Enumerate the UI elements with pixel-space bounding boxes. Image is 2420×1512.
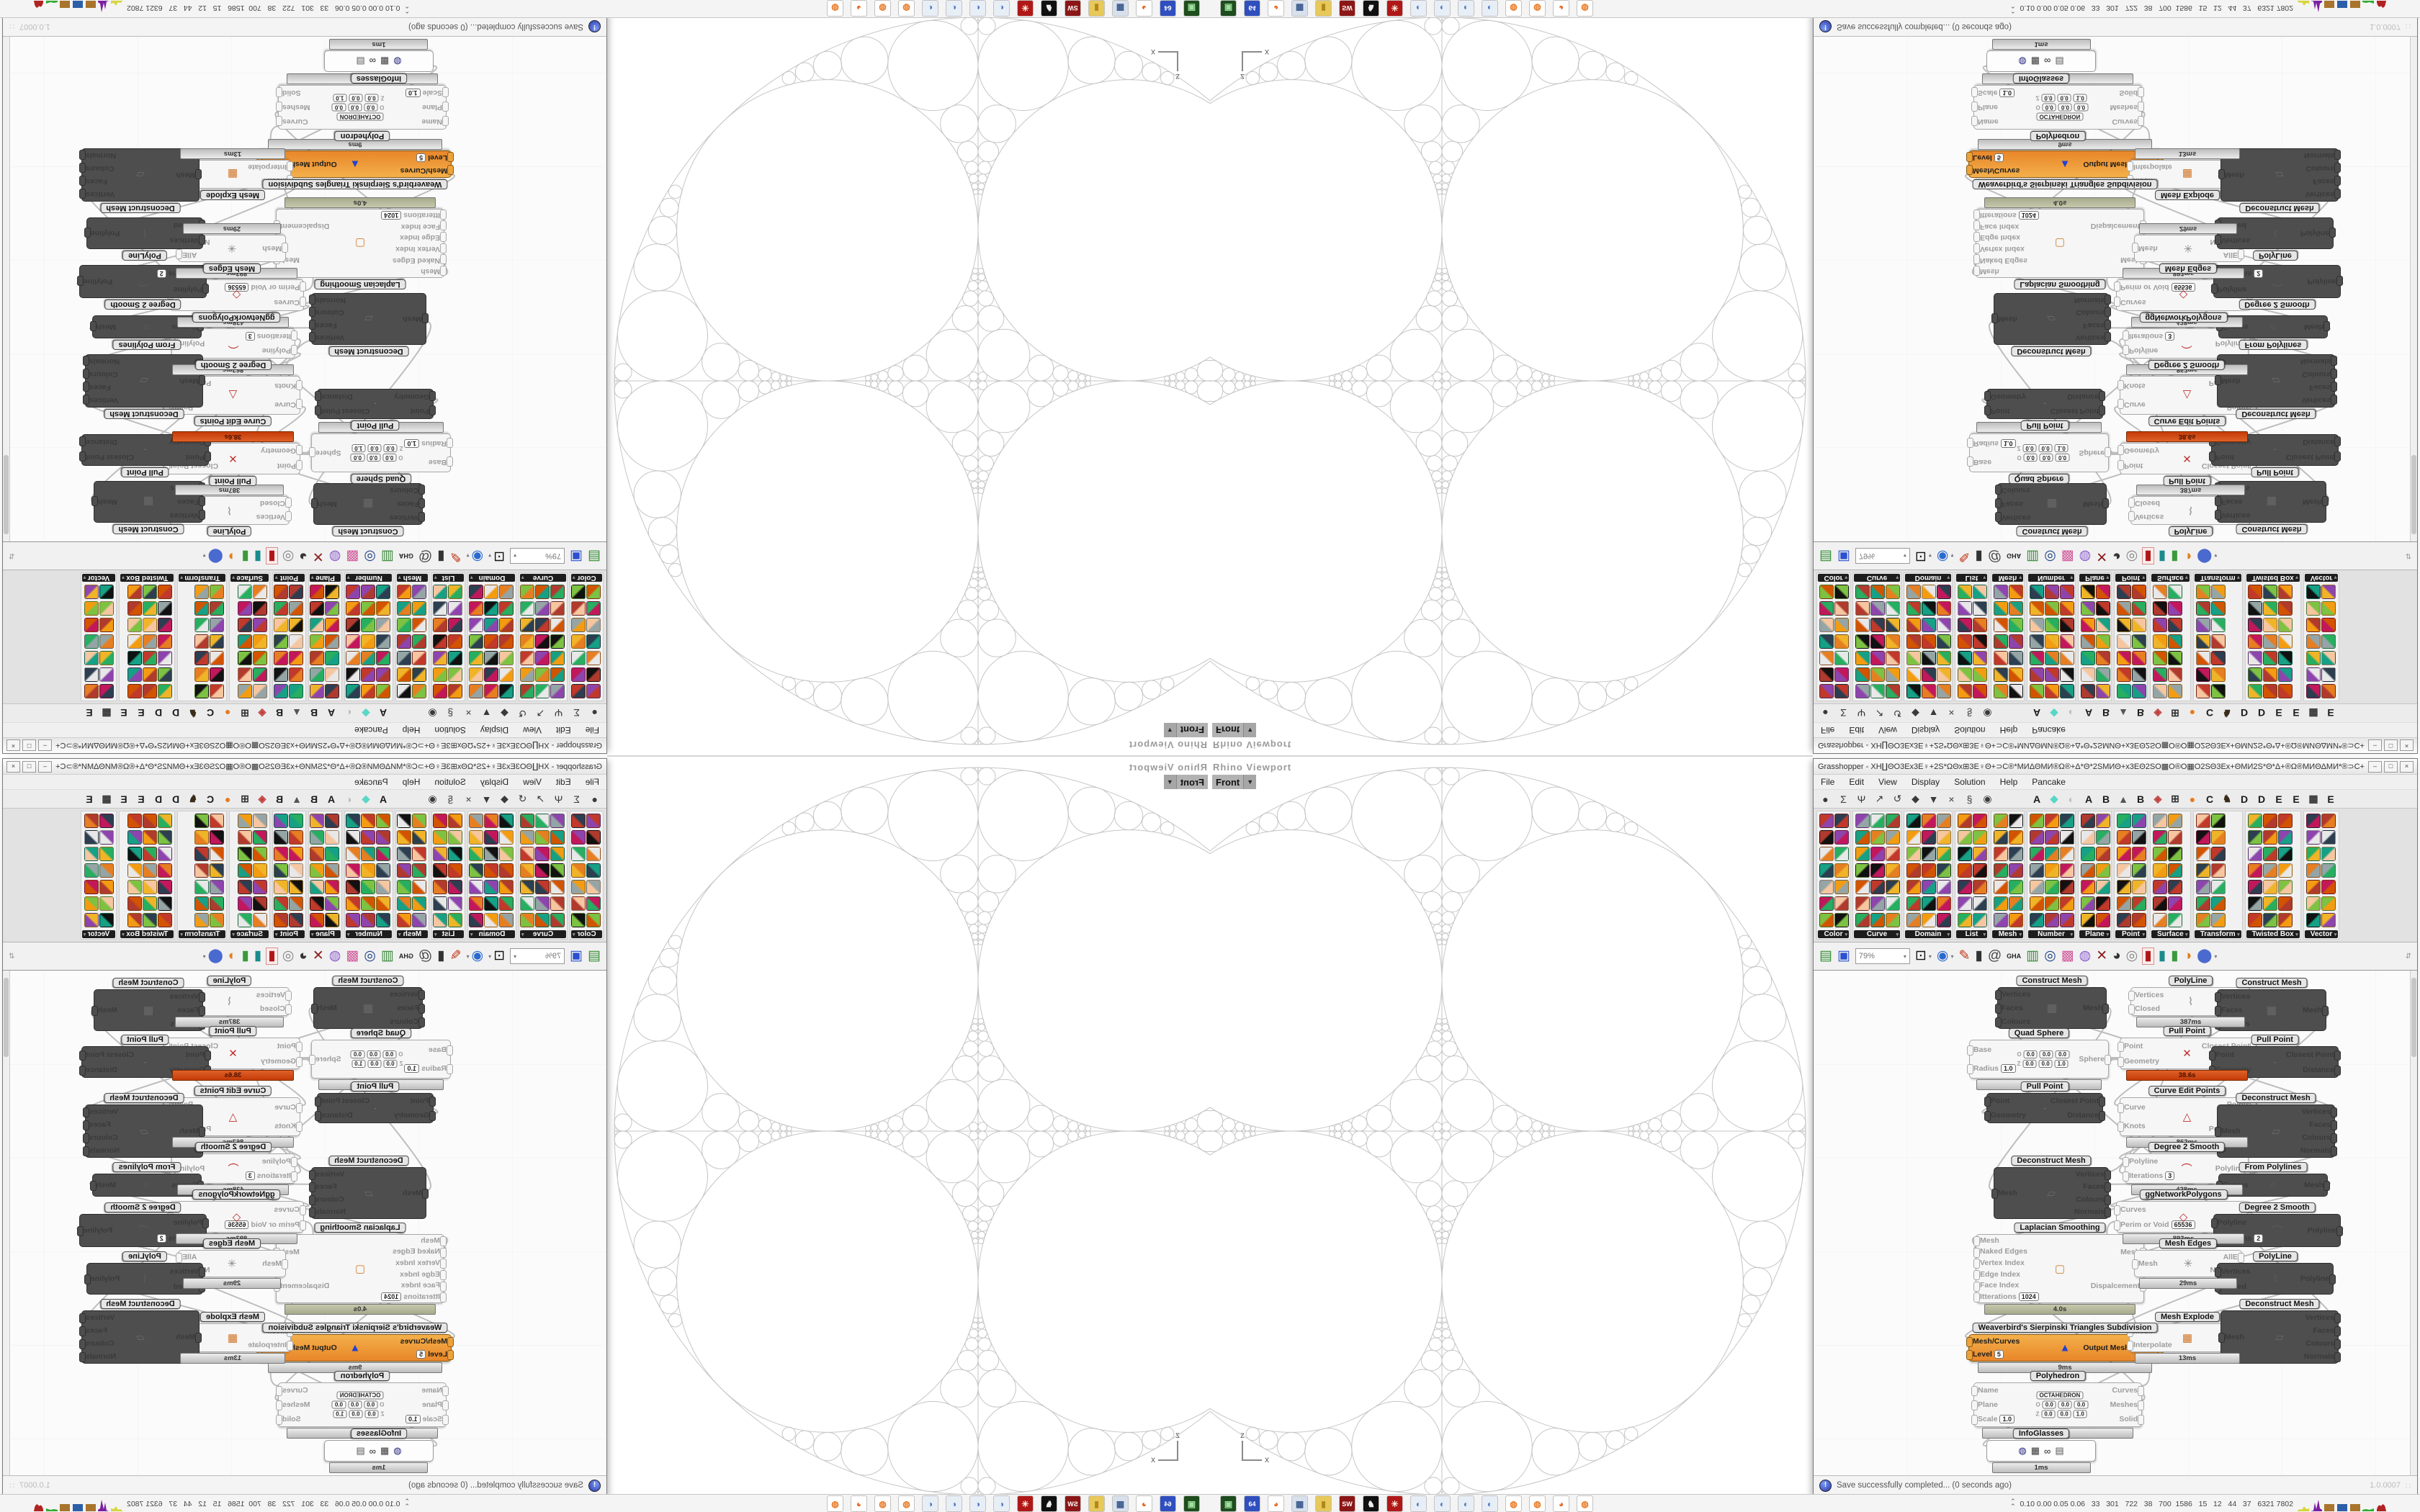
panel-label-transform[interactable]: Transform▾	[2195, 574, 2241, 582]
component-icon[interactable]	[127, 601, 142, 616]
panel-label-color[interactable]: Color▾	[571, 574, 602, 582]
component-icon[interactable]	[448, 863, 462, 878]
app-icon-4[interactable]: ▮	[1088, 1495, 1105, 1512]
component-icon[interactable]	[325, 863, 339, 878]
value-box[interactable]: 0.0	[2074, 104, 2088, 112]
component-icon[interactable]	[448, 618, 462, 632]
component-icon[interactable]	[2306, 618, 2321, 632]
component-icon[interactable]	[2045, 913, 2059, 927]
port-bump[interactable]	[2323, 321, 2330, 331]
input-port[interactable]: Geometry	[2124, 1057, 2159, 1066]
port-bump[interactable]	[2334, 1313, 2341, 1323]
component-icon[interactable]	[1886, 863, 1900, 878]
finder-magnifier-icon[interactable]: ◎	[364, 548, 376, 564]
component-icon[interactable]	[397, 684, 411, 698]
component-icon[interactable]	[2278, 896, 2293, 911]
tangle-x-icon[interactable]: ✕	[313, 948, 324, 964]
component-icon[interactable]	[346, 913, 360, 927]
preview-blue-gem-icon[interactable]: ⬤	[2197, 548, 2212, 564]
component-icon[interactable]	[469, 847, 483, 861]
component-icon[interactable]	[1834, 618, 1849, 632]
output-port[interactable]: Mesh	[98, 498, 117, 506]
plugin-tab-1[interactable]: ◆	[2045, 707, 2063, 719]
component-icon[interactable]	[433, 847, 447, 861]
component-icon[interactable]	[1834, 847, 1849, 861]
value-box[interactable]: OCTAHEDRON	[337, 113, 384, 121]
component-icon[interactable]	[325, 847, 339, 861]
port-bump[interactable]	[2211, 1218, 2218, 1228]
app-icon-13[interactable]: ◍	[1529, 1495, 1546, 1512]
component-icon[interactable]	[571, 880, 586, 894]
cluster-box-icon[interactable]: ▩	[2061, 548, 2074, 564]
component-icon[interactable]	[2117, 814, 2131, 828]
component-icon[interactable]	[2248, 585, 2262, 599]
app-icon-8[interactable]: ◐	[1410, 1495, 1427, 1512]
value-box[interactable]: 1.0	[2001, 1064, 2016, 1073]
component-icon[interactable]	[448, 830, 462, 845]
port-bump[interactable]	[2322, 496, 2329, 506]
component-icon[interactable]	[2263, 667, 2277, 682]
port-bump[interactable]	[2331, 1133, 2337, 1143]
component-icon[interactable]	[289, 667, 303, 682]
component-icon[interactable]	[289, 896, 303, 911]
plugin-tab-1[interactable]: ◆	[2045, 793, 2063, 805]
panel-label-point[interactable]: Point▾	[274, 574, 305, 582]
input-port[interactable]: Face Index	[1980, 222, 2019, 231]
component-icon[interactable]	[586, 896, 601, 911]
component-icon[interactable]	[143, 601, 157, 616]
component-icon[interactable]	[2321, 634, 2336, 649]
port-bump[interactable]	[296, 461, 302, 471]
input-port[interactable]: Point	[2215, 454, 2234, 462]
output-port[interactable]: AllE	[2223, 1253, 2238, 1261]
component-icon[interactable]	[2306, 896, 2321, 911]
component-icon[interactable]	[2278, 863, 2293, 878]
value-box[interactable]: 0.0	[367, 1050, 380, 1058]
component-icon[interactable]	[2132, 880, 2146, 894]
component-icon[interactable]	[448, 896, 462, 911]
panel-label-color[interactable]: Color▾	[571, 930, 602, 938]
port-bump[interactable]	[440, 1292, 447, 1302]
category-tab-icon-1[interactable]: Σ	[1834, 708, 1852, 719]
panel-label-color[interactable]: Color▾	[1818, 930, 1849, 938]
output-port[interactable]: Curves	[2112, 117, 2138, 126]
port-bump[interactable]	[315, 405, 321, 415]
minimize-button[interactable]: –	[38, 740, 52, 752]
port-bump[interactable]	[2336, 276, 2343, 286]
gh-node-ph[interactable]: PolyhedronNamePlaneScale1.0CurvesMeshesS…	[1973, 1382, 2142, 1427]
value-box[interactable]: 0.0	[2056, 454, 2069, 462]
port-bump[interactable]	[1973, 232, 1980, 242]
component-icon[interactable]	[2153, 814, 2167, 828]
minimize-button[interactable]: –	[2368, 740, 2382, 752]
tangle-x-icon[interactable]: ✕	[313, 548, 324, 564]
port-bump[interactable]	[447, 1350, 454, 1360]
plugin-tab-17[interactable]: E	[2322, 793, 2339, 805]
value-box[interactable]: 0.0	[367, 1060, 381, 1068]
component-icon[interactable]	[397, 651, 411, 665]
port-bump[interactable]	[422, 313, 429, 323]
component-icon[interactable]	[2263, 847, 2277, 861]
port-bump[interactable]	[199, 510, 205, 520]
plugin-tab-0[interactable]: A	[2028, 708, 2045, 719]
output-port[interactable]: Dispalcement	[280, 222, 329, 231]
component-icon[interactable]	[412, 601, 426, 616]
app-icon-14[interactable]: ◕	[1553, 1495, 1569, 1512]
component-icon[interactable]	[325, 684, 339, 698]
value-box[interactable]: 5	[416, 153, 426, 162]
component-icon[interactable]	[210, 651, 224, 665]
component-icon[interactable]	[2060, 880, 2074, 894]
port-bump[interactable]	[1995, 1017, 2002, 1027]
component-icon[interactable]	[253, 585, 267, 599]
component-icon[interactable]	[310, 913, 324, 927]
menu-item-help[interactable]: Help	[395, 725, 428, 735]
component-icon[interactable]	[2168, 880, 2182, 894]
output-port[interactable]: Polyline	[2308, 277, 2336, 286]
component-icon[interactable]	[1870, 651, 1885, 665]
component-icon[interactable]	[2306, 684, 2321, 698]
port-bump[interactable]	[2331, 356, 2337, 366]
preview-green-cylinder-icon[interactable]: ▮	[2171, 948, 2178, 964]
port-bump[interactable]	[1995, 990, 2002, 1000]
port-bump[interactable]	[311, 1004, 318, 1014]
component-icon[interactable]	[1834, 880, 1849, 894]
menu-item-solution[interactable]: Solution	[427, 725, 472, 735]
input-port[interactable]: Curves	[274, 299, 300, 307]
port-bump[interactable]	[300, 282, 306, 292]
port-bump[interactable]	[442, 87, 449, 97]
component-icon[interactable]	[2278, 684, 2293, 698]
component-icon[interactable]	[346, 863, 360, 878]
component-icon[interactable]	[158, 601, 172, 616]
plugin-tab-0[interactable]: A	[375, 708, 392, 719]
component-icon[interactable]	[2132, 585, 2146, 599]
component-icon[interactable]	[2132, 896, 2146, 911]
output-port[interactable]: Faces	[89, 383, 111, 392]
scrollbar-thumb[interactable]	[4, 978, 9, 1057]
port-bump[interactable]	[2127, 1341, 2133, 1351]
menu-item-help[interactable]: Help	[1993, 777, 2025, 787]
component-icon[interactable]	[1819, 830, 1834, 845]
component-icon[interactable]	[274, 585, 288, 599]
input-port[interactable]: Radius1.0	[404, 1064, 447, 1073]
component-icon[interactable]	[2278, 634, 2293, 649]
value-box[interactable]: 3	[2165, 332, 2174, 341]
output-port[interactable]: Curves	[282, 1386, 308, 1395]
input-port[interactable]: Vertex Index	[1980, 1259, 2025, 1267]
input-port[interactable]: Knots	[274, 1122, 296, 1130]
component-icon[interactable]	[1937, 913, 1951, 927]
port-bump[interactable]	[447, 152, 454, 162]
remote-at-icon[interactable]: @	[1988, 948, 2002, 964]
component-icon[interactable]	[289, 880, 303, 894]
component-icon[interactable]	[325, 830, 339, 845]
input-port[interactable]: Vertices	[2135, 991, 2164, 999]
plugin-tab-1[interactable]: ◆	[357, 793, 375, 805]
component-icon[interactable]	[1973, 847, 1987, 861]
component-icon[interactable]	[310, 634, 324, 649]
output-port[interactable]: Normals	[2074, 1207, 2105, 1216]
input-port[interactable]: Name	[421, 1386, 442, 1395]
input-port[interactable]: Mesh	[421, 267, 440, 276]
component-icon[interactable]	[1834, 651, 1849, 665]
plugin-tab-11[interactable]: ♞	[184, 707, 202, 719]
value-box[interactable]: 0.0	[383, 444, 397, 452]
output-port[interactable]: Vertices	[2302, 396, 2331, 405]
gh-node-ph[interactable]: PolyhedronNamePlaneScale1.0CurvesMeshesS…	[1973, 85, 2142, 130]
plugin-tab-5[interactable]: ▲	[288, 708, 305, 719]
value-box[interactable]: 1.0	[351, 1060, 365, 1068]
input-port[interactable]: Vertices	[2221, 992, 2250, 1001]
component-icon[interactable]	[1870, 913, 1885, 927]
grasshopper-titlebar[interactable]: Grasshopper - XH∐ΘO3Ex3E♀+2S*ΩΘx⊞3E♀Θ+⊃C…	[1814, 737, 2417, 753]
component-icon[interactable]	[274, 634, 288, 649]
port-bump[interactable]	[79, 150, 86, 160]
component-icon[interactable]	[2263, 601, 2277, 616]
port-bump[interactable]	[2334, 1339, 2341, 1349]
component-icon[interactable]	[84, 585, 99, 599]
port-bump[interactable]	[90, 321, 97, 331]
plugin-tab-6[interactable]: B	[271, 708, 288, 719]
component-icon[interactable]	[520, 667, 534, 682]
output-port[interactable]: Distance	[2067, 1111, 2099, 1120]
port-bump[interactable]	[2102, 1004, 2109, 1014]
port-bump[interactable]	[2114, 1220, 2120, 1230]
value-box[interactable]: 1.0	[1999, 1415, 2015, 1423]
component-icon[interactable]	[1973, 667, 1987, 682]
canvas-scrollbar[interactable]	[3, 37, 10, 541]
component-icon[interactable]	[412, 863, 426, 878]
value-box[interactable]: 0.0	[367, 454, 380, 462]
plugin-tab-1[interactable]: ◆	[357, 707, 375, 719]
component-icon[interactable]	[499, 863, 514, 878]
component-icon[interactable]	[2306, 830, 2321, 845]
component-icon[interactable]	[2081, 651, 2095, 665]
category-tab-icon-1[interactable]: Σ	[568, 793, 586, 805]
panel-label-surface[interactable]: Surface▾	[230, 930, 269, 938]
port-bump[interactable]	[276, 1400, 282, 1410]
plugin-tab-3[interactable]: A	[323, 793, 340, 805]
resize-grip[interactable]: ∷	[9, 1481, 14, 1490]
category-tab-icon-7[interactable]: ×	[460, 793, 478, 805]
plugin-tab-5[interactable]: ▲	[2115, 793, 2132, 805]
input-port[interactable]: Point	[2124, 1042, 2143, 1050]
component-icon[interactable]	[571, 585, 586, 599]
close-button[interactable]: ×	[6, 740, 20, 752]
output-port[interactable]: Meshes	[2110, 1400, 2138, 1409]
plugin-tab-11[interactable]: ♞	[2218, 707, 2236, 719]
component-icon[interactable]	[2211, 880, 2226, 894]
component-icon[interactable]	[1886, 618, 1900, 632]
component-icon[interactable]	[499, 814, 514, 828]
plugin-tab-10[interactable]: C	[202, 793, 219, 805]
component-icon[interactable]	[2081, 830, 2095, 845]
component-icon[interactable]	[1886, 667, 1900, 682]
component-icon[interactable]	[361, 880, 375, 894]
output-port[interactable]: Distance	[86, 1066, 117, 1074]
value-box[interactable]: 0.0	[2040, 454, 2053, 462]
component-icon[interactable]	[376, 601, 390, 616]
input-port[interactable]: Interpolate	[248, 1341, 287, 1349]
component-icon[interactable]	[2196, 830, 2210, 845]
port-bump[interactable]	[2117, 1042, 2124, 1052]
plugin-tab-7[interactable]: ◈	[2149, 793, 2166, 805]
canvas-door-icon[interactable]: ▮	[1975, 948, 1982, 964]
component-icon[interactable]	[2196, 863, 2210, 878]
component-icon[interactable]	[361, 814, 375, 828]
output-port[interactable]: Distance	[321, 392, 353, 401]
preview-dark-sphere-icon[interactable]: ◕	[299, 948, 307, 964]
input-port[interactable]: Vertices	[2135, 513, 2164, 522]
component-icon[interactable]	[433, 585, 447, 599]
component-icon[interactable]	[550, 814, 565, 828]
port-bump[interactable]	[2215, 235, 2221, 246]
port-bump[interactable]	[1991, 313, 1998, 323]
category-tab-icon-1[interactable]: Σ	[568, 708, 586, 719]
port-bump[interactable]	[202, 1218, 209, 1228]
component-icon[interactable]	[253, 601, 267, 616]
component-icon[interactable]	[253, 618, 267, 632]
rhino-viewport[interactable]: Rhino Viewport Front ▼ z x	[607, 756, 1210, 1495]
input-port[interactable]: Plane	[422, 103, 442, 112]
panel-label-list[interactable]: List▾	[1956, 930, 1987, 938]
port-bump[interactable]	[440, 1270, 447, 1280]
port-bump[interactable]	[2128, 512, 2135, 522]
port-bump[interactable]	[442, 1415, 449, 1425]
input-port[interactable]: Faces	[2221, 498, 2243, 506]
component-icon[interactable]	[484, 585, 498, 599]
output-port[interactable]: Vertices	[2305, 1313, 2334, 1322]
component-icon[interactable]	[2306, 634, 2321, 649]
component-icon[interactable]	[2132, 618, 2146, 632]
output-port[interactable]: Colours	[2305, 1339, 2334, 1348]
plugin-tab-16[interactable]: ▦	[2305, 793, 2322, 805]
component-icon[interactable]	[194, 634, 209, 649]
save-file-icon[interactable]: ▣	[570, 948, 583, 964]
component-icon[interactable]	[1922, 618, 1936, 632]
component-icon[interactable]	[210, 830, 224, 845]
port-bump[interactable]	[1967, 456, 1973, 467]
gh-node-qs[interactable]: Quad SphereBaseRadius1.0SphereO0.00.00.0…	[1969, 1040, 2109, 1079]
plugin-tab-10[interactable]: C	[2201, 708, 2218, 719]
component-icon[interactable]	[433, 814, 447, 828]
plugin-tab-16[interactable]: ▦	[98, 793, 115, 805]
sketch-pen-icon[interactable]: ✎	[1958, 548, 1970, 564]
value-box[interactable]: 0.0	[349, 1410, 362, 1418]
component-icon[interactable]	[1922, 896, 1936, 911]
input-port[interactable]: Base	[1973, 1045, 1991, 1054]
port-bump[interactable]	[79, 1313, 86, 1323]
component-icon[interactable]	[484, 618, 498, 632]
gh-node-dm1[interactable]: Deconstruct MeshMeshVerticesFacesColours…	[311, 293, 426, 345]
input-port[interactable]: Faces	[177, 1006, 199, 1014]
value-box[interactable]: 1024	[381, 211, 401, 220]
port-bump[interactable]	[296, 380, 302, 390]
component-icon[interactable]	[361, 896, 375, 911]
port-bump[interactable]	[311, 498, 318, 508]
galapagos-balloon-icon[interactable]: ◍	[329, 548, 341, 564]
app-icon-8[interactable]: ◐	[993, 0, 1010, 17]
output-port[interactable]: Closest Point	[2051, 407, 2099, 415]
component-icon[interactable]	[127, 896, 142, 911]
port-bump[interactable]	[2117, 1103, 2124, 1113]
port-bump[interactable]	[2209, 1050, 2215, 1061]
component-icon[interactable]	[143, 585, 157, 599]
port-bump[interactable]	[2105, 1207, 2111, 1218]
preview-rings-icon[interactable]: ◎	[282, 948, 295, 964]
component-icon[interactable]	[412, 618, 426, 632]
port-bump[interactable]	[91, 1006, 98, 1016]
component-icon[interactable]	[2211, 830, 2226, 845]
component-icon[interactable]	[1994, 863, 2008, 878]
component-icon[interactable]	[2321, 913, 2336, 927]
component-icon[interactable]	[238, 618, 252, 632]
component-icon[interactable]	[253, 880, 267, 894]
input-port[interactable]: Mesh	[1980, 1236, 1999, 1245]
component-icon[interactable]	[346, 651, 360, 665]
component-icon[interactable]	[1886, 847, 1900, 861]
component-icon[interactable]	[550, 913, 565, 927]
component-icon[interactable]	[1922, 585, 1936, 599]
port-bump[interactable]	[296, 1122, 302, 1132]
component-icon[interactable]	[361, 684, 375, 698]
port-bump[interactable]	[309, 1182, 315, 1192]
component-icon[interactable]	[2117, 830, 2131, 845]
port-bump[interactable]	[276, 102, 282, 112]
output-port[interactable]: Closest Point	[2286, 1050, 2334, 1059]
input-port[interactable]: Faces	[2221, 1006, 2243, 1014]
component-icon[interactable]	[448, 880, 462, 894]
port-bump[interactable]	[2117, 461, 2124, 471]
port-bump[interactable]	[296, 1042, 302, 1052]
component-icon[interactable]	[2168, 684, 2182, 698]
input-port[interactable]: Level5	[1973, 153, 2004, 162]
node-canvas[interactable]: Construct MeshVerticesFacesColoursMesh▦Q…	[3, 37, 606, 541]
component-icon[interactable]	[2132, 684, 2146, 698]
component-icon[interactable]	[361, 585, 375, 599]
panel-label-curve[interactable]: Curve▾	[1854, 930, 1900, 938]
port-bump[interactable]	[2322, 1006, 2329, 1016]
component-icon[interactable]	[2211, 618, 2226, 632]
component-icon[interactable]	[1994, 847, 2008, 861]
component-icon[interactable]	[1855, 684, 1870, 698]
save-file-icon[interactable]: ▣	[1837, 948, 1850, 964]
port-bump[interactable]	[1984, 1111, 1991, 1121]
output-port[interactable]: Vertices	[315, 1170, 344, 1179]
port-bump[interactable]	[447, 1064, 453, 1074]
component-icon[interactable]	[1994, 601, 2008, 616]
component-icon[interactable]	[586, 847, 601, 861]
component-icon[interactable]	[2009, 830, 2023, 845]
component-icon[interactable]	[586, 880, 601, 894]
component-icon[interactable]	[1973, 601, 1987, 616]
app-icon-2[interactable]: ◕	[1136, 1495, 1152, 1512]
component-icon[interactable]	[84, 863, 99, 878]
input-port[interactable]: Knots	[2124, 382, 2146, 390]
component-icon[interactable]	[2153, 585, 2167, 599]
component-icon[interactable]	[1819, 585, 1834, 599]
plugin-tab-4[interactable]: B	[2097, 708, 2115, 719]
component-icon[interactable]	[2278, 880, 2293, 894]
output-port[interactable]: Faces	[315, 1182, 337, 1191]
component-icon[interactable]	[127, 830, 142, 845]
component-icon[interactable]	[2306, 667, 2321, 682]
port-bump[interactable]	[2329, 1274, 2336, 1284]
component-icon[interactable]	[433, 667, 447, 682]
component-icon[interactable]	[84, 896, 99, 911]
component-icon[interactable]	[1886, 830, 1900, 845]
